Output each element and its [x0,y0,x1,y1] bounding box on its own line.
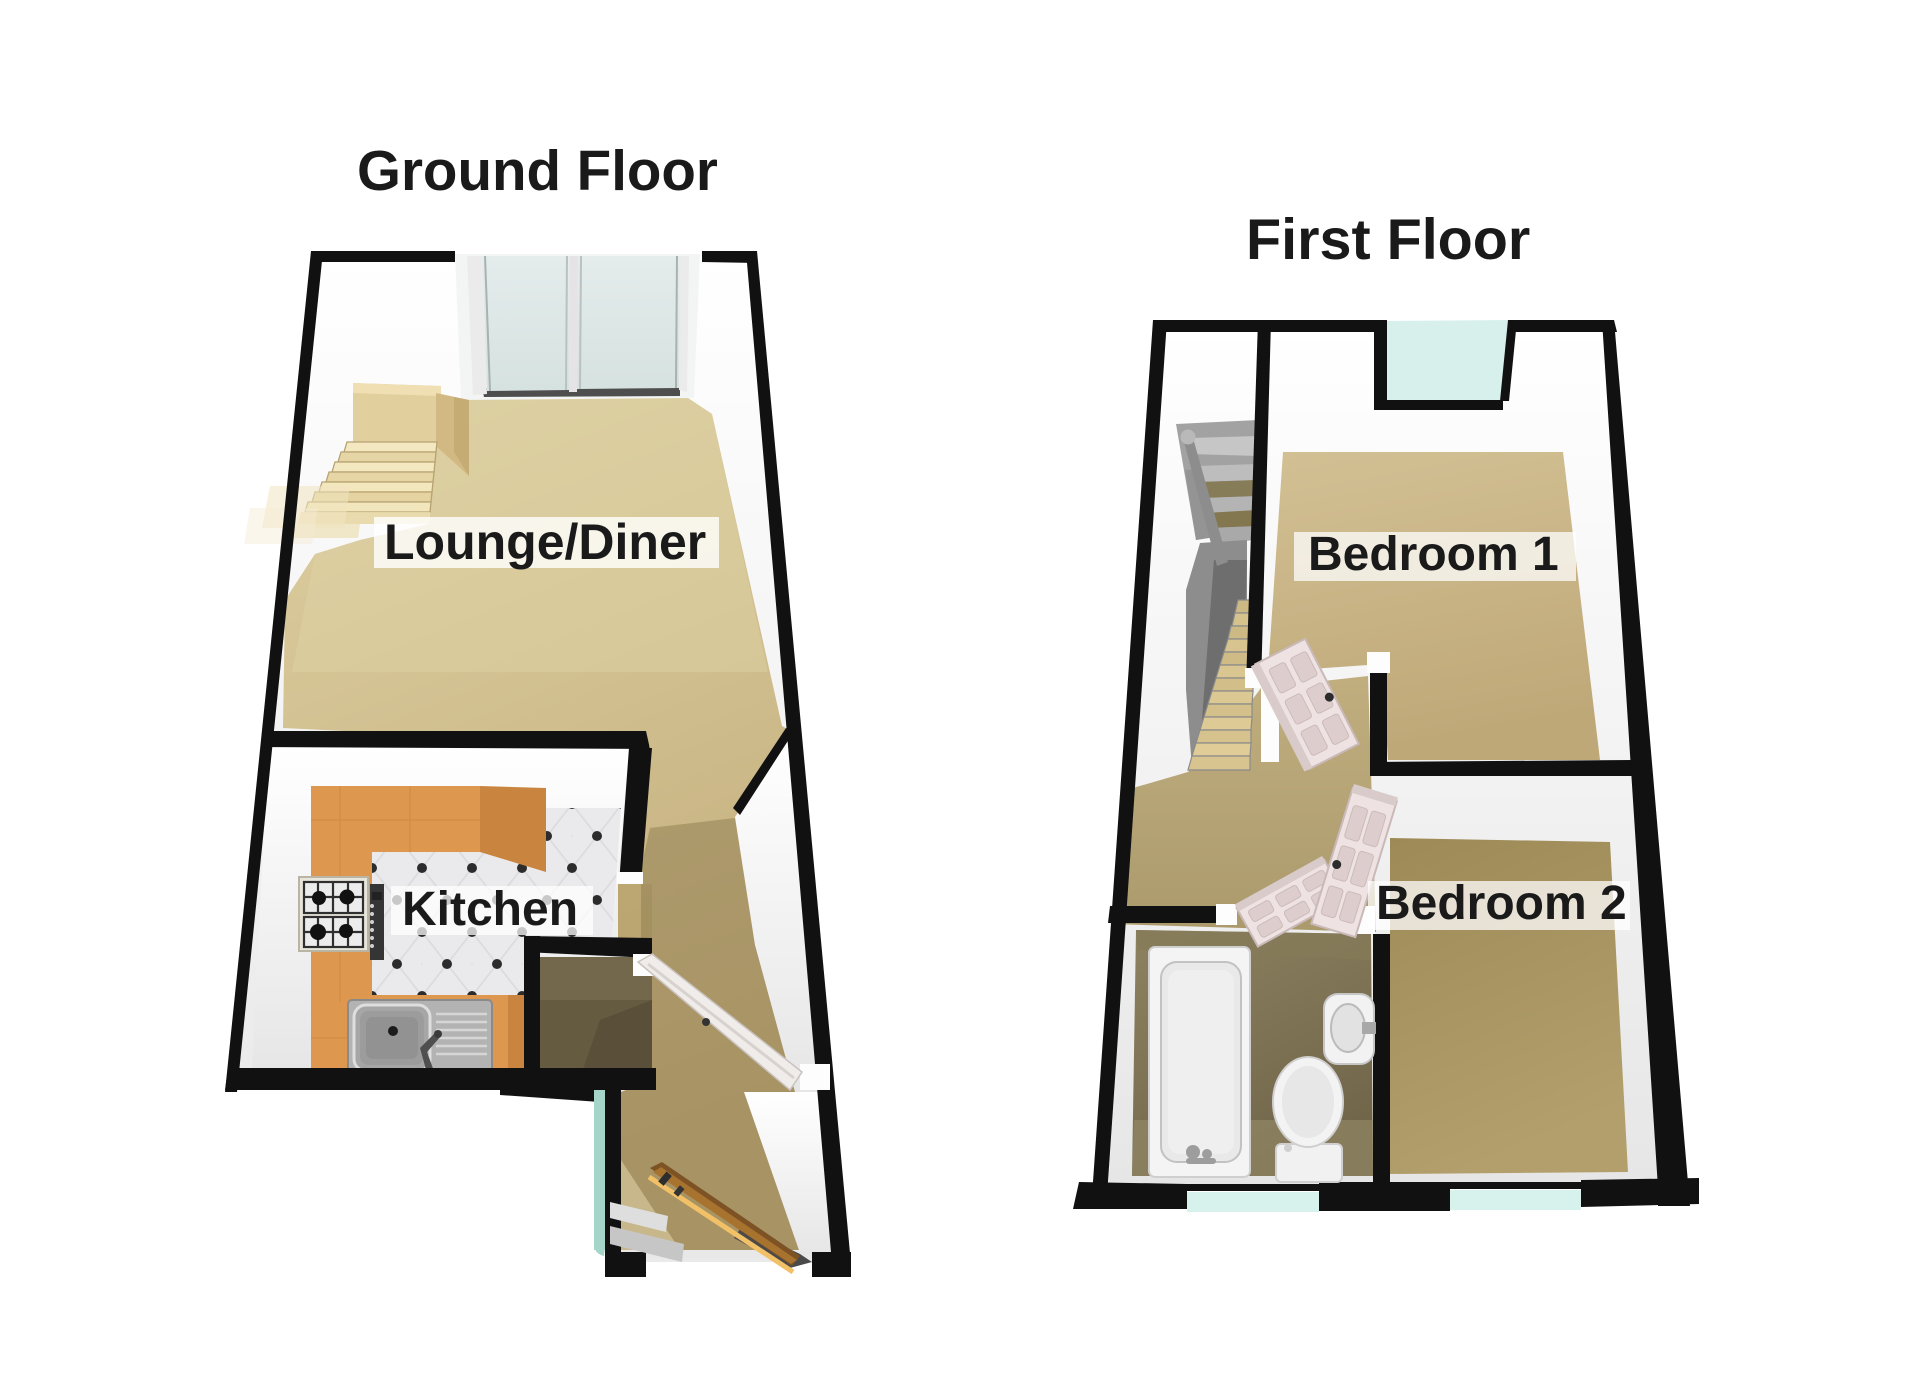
svg-text:Ground Floor: Ground Floor [357,139,718,202]
svg-text:First Floor: First Floor [1246,208,1530,272]
svg-text:Lounge/Diner: Lounge/Diner [384,514,706,570]
svg-text:Kitchen: Kitchen [402,883,578,936]
svg-text:Bedroom 1: Bedroom 1 [1308,528,1559,581]
svg-text:Bedroom 2: Bedroom 2 [1376,877,1627,930]
